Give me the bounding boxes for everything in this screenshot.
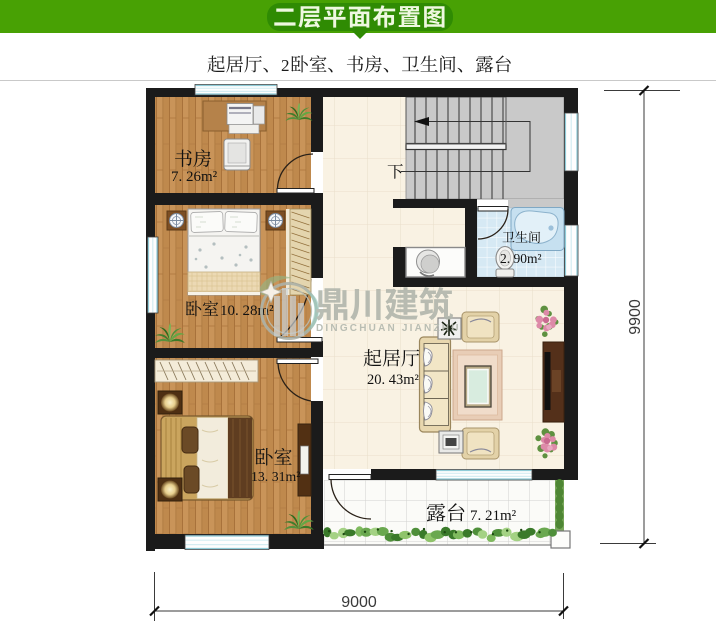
svg-text:20. 43m²: 20. 43m²	[367, 372, 420, 388]
svg-text:7. 26m²: 7. 26m²	[171, 169, 218, 185]
svg-text:13. 31m²: 13. 31m²	[251, 469, 300, 484]
svg-text:7. 21m²: 7. 21m²	[470, 508, 517, 524]
svg-text:2: 2	[281, 56, 290, 75]
svg-text:9000: 9000	[341, 594, 377, 611]
svg-text:2. 90m²: 2. 90m²	[500, 251, 542, 266]
svg-text:DINGCHUAN JIANZHU: DINGCHUAN JIANZHU	[316, 323, 461, 334]
svg-text:9900: 9900	[627, 299, 644, 335]
